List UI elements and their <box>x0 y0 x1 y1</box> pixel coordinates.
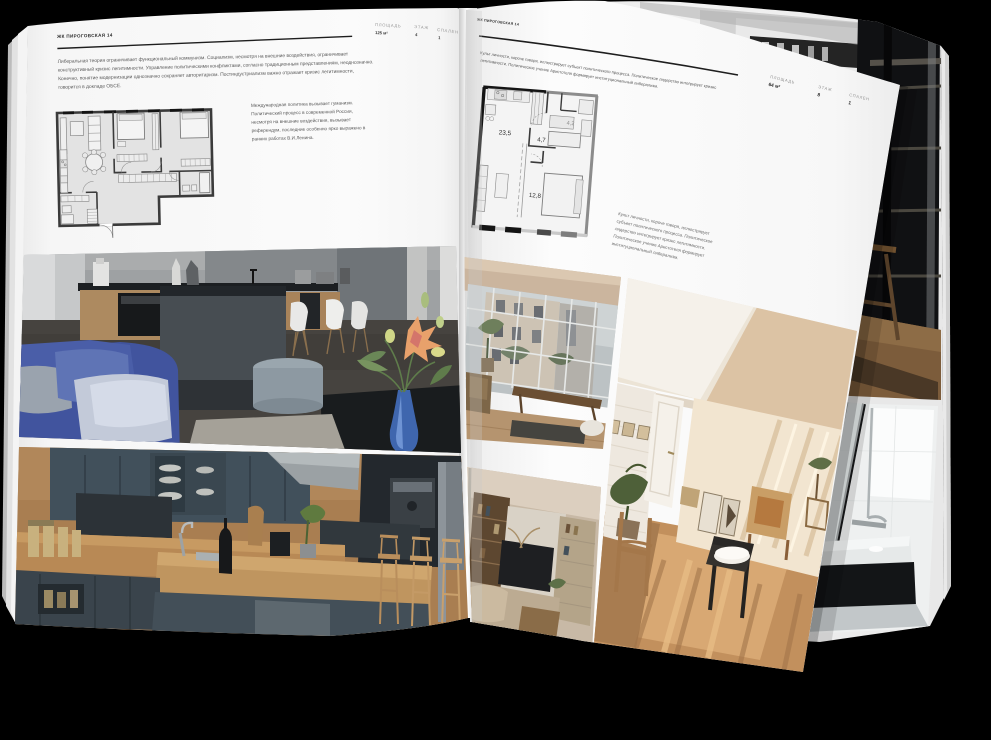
svg-text:4,7: 4,7 <box>537 137 546 144</box>
svg-text:12,8: 12,8 <box>529 192 542 200</box>
svg-text:125 м²: 125 м² <box>375 30 388 36</box>
svg-text:4,2: 4,2 <box>566 121 574 128</box>
svg-text:23,5: 23,5 <box>498 129 511 137</box>
